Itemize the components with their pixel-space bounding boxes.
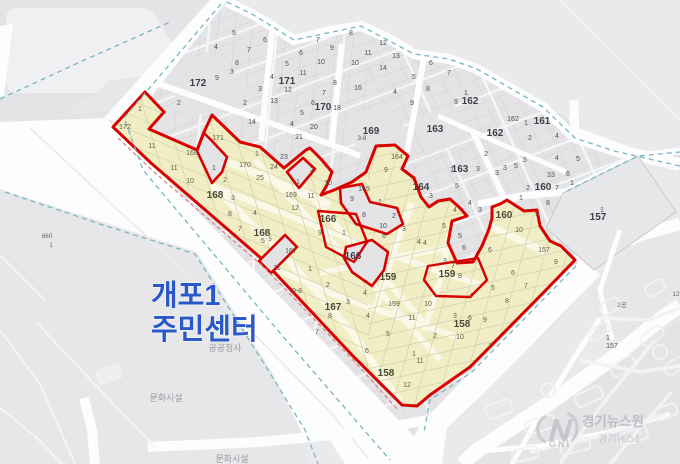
svg-text:159: 159	[380, 272, 397, 283]
svg-text:160: 160	[496, 210, 513, 221]
svg-text:3: 3	[402, 226, 406, 233]
svg-text:159: 159	[388, 301, 400, 308]
svg-text:6: 6	[566, 171, 570, 178]
svg-text:25: 25	[256, 175, 264, 182]
svg-text:2: 2	[528, 135, 532, 142]
svg-text:5: 5	[455, 183, 459, 190]
svg-text:7: 7	[247, 47, 251, 54]
svg-text:6: 6	[299, 50, 303, 57]
svg-text:170: 170	[315, 102, 332, 113]
svg-text:4: 4	[423, 240, 427, 247]
svg-text:3: 3	[231, 195, 235, 202]
svg-text:4: 4	[214, 44, 218, 51]
svg-text:10: 10	[317, 59, 325, 66]
svg-text:24: 24	[270, 164, 278, 171]
svg-text:6: 6	[263, 37, 267, 44]
svg-text:개포1: 개포1	[151, 279, 221, 312]
svg-text:172: 172	[119, 124, 131, 131]
svg-text:3: 3	[429, 193, 433, 200]
svg-text:168: 168	[186, 150, 198, 157]
svg-text:2: 2	[310, 167, 314, 174]
svg-text:경기뉴스1: 경기뉴스1	[598, 432, 641, 445]
svg-text:3: 3	[551, 172, 555, 179]
svg-text:9: 9	[350, 196, 354, 203]
svg-text:4: 4	[555, 155, 559, 162]
svg-text:2: 2	[392, 213, 396, 220]
svg-text:1: 1	[308, 266, 312, 273]
svg-text:8: 8	[328, 313, 332, 320]
svg-text:8: 8	[228, 211, 232, 218]
svg-text:158: 158	[454, 319, 471, 330]
svg-text:160: 160	[535, 182, 552, 193]
svg-text:660: 660	[42, 233, 53, 240]
svg-text:8: 8	[426, 86, 430, 93]
svg-text:1: 1	[342, 230, 346, 237]
svg-text:13: 13	[392, 53, 400, 60]
svg-text:165: 165	[358, 186, 370, 193]
svg-text:9: 9	[410, 100, 414, 107]
svg-text:172: 172	[190, 78, 207, 89]
svg-text:10: 10	[424, 301, 432, 308]
svg-text:166: 166	[345, 251, 362, 262]
svg-text:1: 1	[488, 343, 492, 350]
svg-text:10: 10	[351, 60, 359, 67]
svg-text:9: 9	[483, 317, 487, 324]
svg-text:4: 4	[253, 210, 257, 217]
svg-text:12: 12	[284, 87, 292, 94]
svg-text:4: 4	[270, 74, 274, 81]
svg-text:6: 6	[511, 270, 515, 277]
svg-text:162: 162	[507, 116, 519, 123]
svg-text:8: 8	[505, 298, 509, 305]
svg-text:6: 6	[382, 233, 386, 240]
svg-text:6: 6	[488, 247, 492, 254]
svg-text:1: 1	[412, 351, 416, 358]
svg-text:18: 18	[333, 105, 341, 112]
svg-text:문화시설: 문화시설	[215, 454, 248, 464]
svg-text:10: 10	[324, 180, 332, 187]
svg-text:11: 11	[299, 70, 306, 77]
svg-text:주민센터: 주민센터	[151, 313, 258, 346]
svg-text:6: 6	[365, 348, 369, 355]
svg-text:171: 171	[279, 76, 296, 87]
svg-text:3: 3	[476, 166, 480, 173]
svg-text:167: 167	[285, 248, 297, 255]
svg-text:9: 9	[215, 75, 219, 82]
svg-text:11: 11	[307, 193, 314, 200]
svg-text:171: 171	[212, 135, 224, 142]
svg-text:6: 6	[429, 60, 433, 67]
svg-text:158: 158	[378, 368, 395, 379]
svg-text:3: 3	[258, 86, 262, 93]
svg-text:문화시설: 문화시설	[149, 393, 182, 403]
svg-text:161: 161	[534, 116, 551, 127]
svg-text:4: 4	[469, 293, 473, 300]
svg-text:9: 9	[554, 259, 558, 266]
svg-text:4: 4	[366, 313, 370, 320]
svg-text:163: 163	[452, 164, 469, 175]
svg-text:157: 157	[538, 247, 550, 254]
svg-text:10: 10	[456, 334, 464, 341]
svg-text:12: 12	[379, 40, 387, 47]
svg-text:1: 1	[606, 335, 610, 342]
svg-text:3: 3	[547, 172, 551, 179]
svg-text:3: 3	[495, 170, 499, 177]
svg-text:5: 5	[523, 157, 527, 164]
svg-text:8: 8	[458, 273, 462, 280]
svg-text:162: 162	[487, 128, 504, 139]
svg-text:12: 12	[403, 382, 411, 389]
svg-text:11: 11	[416, 358, 423, 365]
svg-text:1: 1	[524, 120, 528, 127]
svg-text:7: 7	[555, 185, 559, 192]
svg-text:4: 4	[453, 207, 457, 214]
svg-text:157: 157	[606, 343, 618, 350]
svg-text:2: 2	[484, 151, 488, 158]
svg-text:13: 13	[270, 98, 278, 105]
svg-text:2: 2	[177, 100, 181, 107]
svg-text:5: 5	[386, 331, 390, 338]
svg-text:2: 2	[223, 177, 227, 184]
svg-text:3: 3	[503, 165, 507, 172]
svg-text:11: 11	[408, 315, 415, 322]
svg-text:2: 2	[326, 282, 330, 289]
svg-text:1: 1	[255, 151, 259, 158]
svg-text:5: 5	[285, 61, 289, 68]
svg-text:5: 5	[458, 233, 462, 240]
svg-text:7: 7	[524, 283, 528, 290]
svg-text:7: 7	[447, 70, 451, 77]
svg-text:3: 3	[478, 207, 482, 214]
svg-text:21: 21	[295, 134, 303, 141]
svg-text:2: 2	[243, 100, 247, 107]
svg-text:7: 7	[322, 90, 326, 97]
svg-text:5: 5	[442, 223, 446, 230]
svg-text:5: 5	[232, 30, 236, 37]
svg-text:11: 11	[170, 165, 177, 172]
svg-text:4: 4	[417, 239, 421, 246]
svg-text:168: 168	[207, 190, 224, 201]
svg-text:1: 1	[212, 165, 216, 172]
svg-text:169: 169	[285, 192, 297, 199]
svg-text:10: 10	[186, 178, 194, 185]
svg-text:7: 7	[450, 167, 454, 174]
svg-text:9: 9	[535, 211, 539, 218]
svg-text:11: 11	[148, 143, 155, 150]
svg-text:5: 5	[576, 156, 580, 163]
svg-text:20: 20	[310, 124, 318, 131]
svg-text:2: 2	[526, 185, 530, 192]
svg-text:1: 1	[138, 106, 142, 113]
svg-text:5: 5	[261, 238, 265, 245]
svg-text:8: 8	[546, 200, 550, 207]
svg-text:12: 12	[672, 291, 680, 298]
svg-text:7: 7	[316, 37, 320, 44]
svg-text:8: 8	[333, 80, 337, 87]
svg-text:9: 9	[454, 99, 458, 106]
svg-text:3: 3	[443, 258, 447, 265]
svg-text:3-8: 3-8	[358, 136, 367, 142]
svg-text:159: 159	[439, 269, 456, 280]
svg-text:162: 162	[462, 96, 479, 107]
svg-text:4: 4	[555, 133, 559, 140]
svg-text:8: 8	[362, 212, 366, 219]
svg-text:9: 9	[318, 230, 322, 237]
svg-text:12: 12	[291, 205, 299, 212]
svg-text:3: 3	[346, 299, 350, 306]
svg-text:5: 5	[514, 163, 518, 170]
svg-text:10: 10	[515, 227, 523, 234]
svg-text:14: 14	[379, 65, 387, 72]
svg-text:157: 157	[590, 212, 607, 223]
svg-text:GNI: GNI	[549, 439, 571, 449]
svg-text:1: 1	[296, 179, 300, 186]
svg-text:23: 23	[280, 154, 288, 161]
svg-text:경기뉴스원: 경기뉴스원	[582, 413, 644, 429]
svg-text:7: 7	[315, 329, 319, 336]
svg-text:164: 164	[413, 182, 430, 193]
svg-text:166: 166	[320, 214, 337, 225]
svg-text:5: 5	[300, 110, 304, 117]
svg-text:167: 167	[325, 302, 342, 313]
svg-text:3: 3	[230, 69, 234, 76]
svg-text:1: 1	[49, 242, 53, 249]
svg-text:1: 1	[519, 195, 523, 202]
svg-text:4: 4	[290, 121, 294, 128]
svg-text:2: 2	[433, 333, 437, 340]
svg-text:8: 8	[235, 60, 239, 67]
svg-text:11: 11	[273, 265, 280, 272]
svg-text:6: 6	[462, 245, 466, 252]
svg-text:1: 1	[378, 199, 382, 206]
svg-text:14: 14	[248, 119, 256, 126]
svg-text:4: 4	[393, 89, 397, 96]
svg-text:163: 163	[427, 124, 444, 135]
svg-text:16: 16	[354, 85, 362, 92]
svg-text:170: 170	[239, 162, 251, 169]
svg-text:4: 4	[363, 290, 367, 297]
svg-text:164: 164	[391, 154, 403, 161]
svg-text:1: 1	[570, 180, 574, 187]
svg-text:4: 4	[468, 200, 472, 207]
svg-text:9: 9	[384, 167, 388, 174]
svg-text:8: 8	[349, 30, 353, 37]
svg-text:10: 10	[379, 223, 387, 230]
svg-text:7: 7	[238, 226, 242, 233]
svg-text:11: 11	[364, 50, 371, 57]
svg-text:9-8: 9-8	[292, 288, 302, 295]
svg-text:9: 9	[330, 45, 334, 52]
svg-text:2공: 2공	[617, 301, 627, 309]
svg-text:5: 5	[412, 74, 416, 81]
svg-text:5: 5	[491, 285, 495, 292]
